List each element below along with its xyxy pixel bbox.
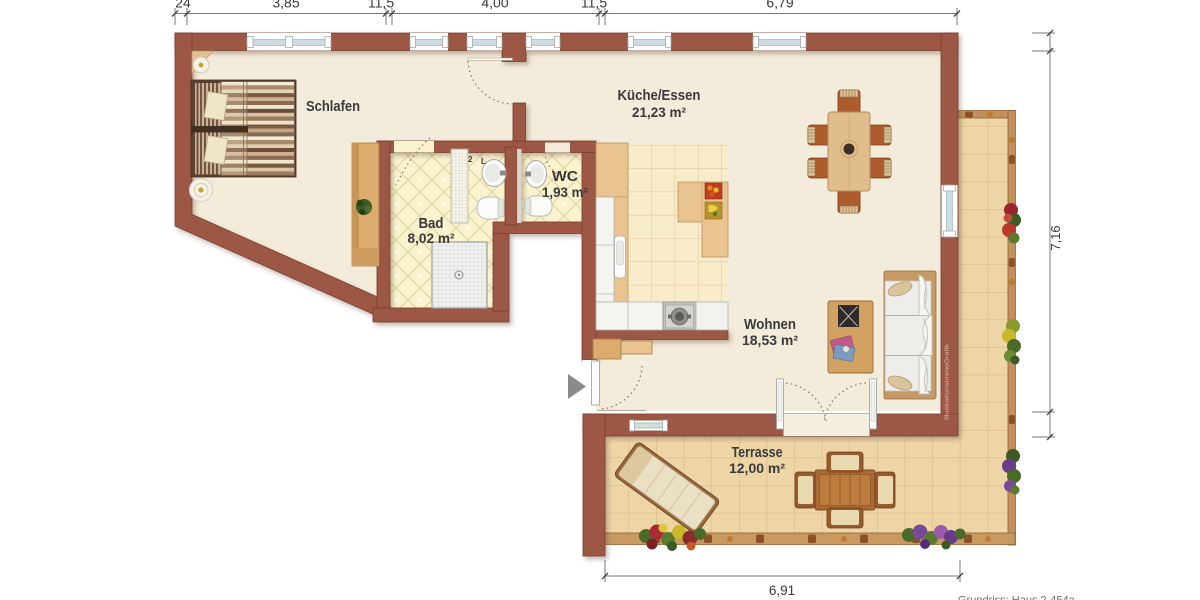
- svg-text:21,23 m²: 21,23 m²: [632, 105, 686, 120]
- svg-text:IllustrationsImmoGrafik: IllustrationsImmoGrafik: [945, 343, 951, 420]
- svg-text:3,85: 3,85: [272, 0, 299, 11]
- svg-text:2: 2: [468, 155, 473, 164]
- svg-text:8,02 m²: 8,02 m²: [408, 231, 456, 246]
- svg-text:Terrasse: Terrasse: [732, 445, 783, 461]
- svg-text:7,16: 7,16: [1048, 225, 1063, 250]
- svg-text:4,00: 4,00: [481, 0, 508, 11]
- svg-text:WC: WC: [552, 169, 579, 185]
- svg-text:Küche/Essen: Küche/Essen: [618, 88, 701, 104]
- svg-text:24: 24: [175, 0, 191, 11]
- svg-text:11,5: 11,5: [368, 0, 394, 11]
- svg-text:Wohnen: Wohnen: [744, 317, 796, 333]
- svg-text:18,53 m²: 18,53 m²: [742, 333, 799, 348]
- svg-text:Schlafen: Schlafen: [306, 99, 360, 115]
- svg-text:6,79: 6,79: [766, 0, 793, 11]
- svg-text:11,5: 11,5: [581, 0, 607, 11]
- svg-text:Bad: Bad: [419, 216, 444, 232]
- svg-text:6,91: 6,91: [769, 583, 795, 598]
- svg-text:1,93 m²: 1,93 m²: [542, 185, 588, 200]
- svg-text:12,00 m²: 12,00 m²: [729, 461, 786, 476]
- svg-text:Grundriss: Haus 2-454a: Grundriss: Haus 2-454a: [958, 595, 1076, 600]
- svg-text:L: L: [481, 157, 486, 166]
